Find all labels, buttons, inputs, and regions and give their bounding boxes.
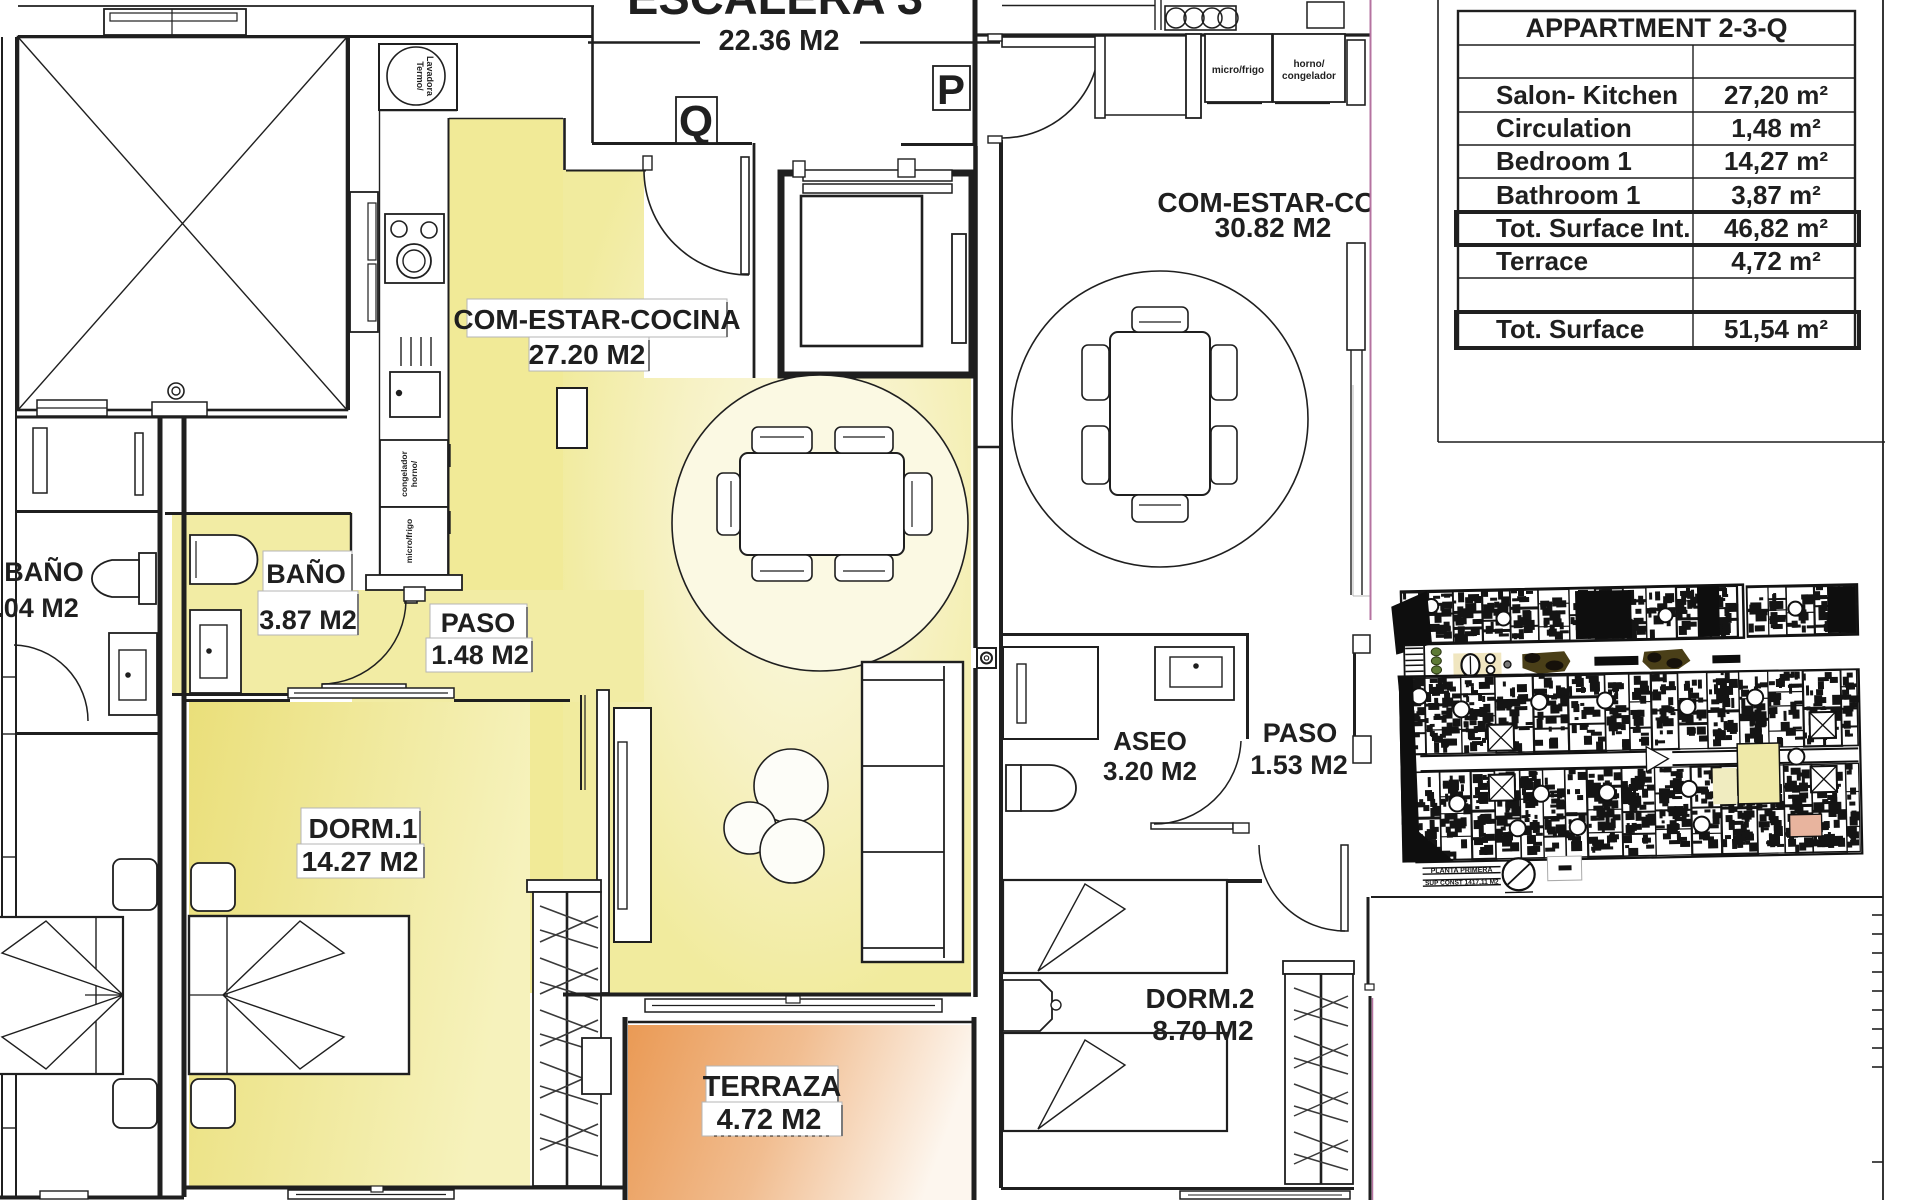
svg-text:DORM.1: DORM.1 bbox=[309, 813, 418, 844]
svg-text:PASO: PASO bbox=[1263, 718, 1338, 748]
svg-text:1,48 m²: 1,48 m² bbox=[1731, 113, 1821, 143]
svg-text:Q: Q bbox=[679, 97, 713, 146]
svg-text:Bedroom 1: Bedroom 1 bbox=[1496, 146, 1632, 176]
svg-text:TERRAZA: TERRAZA bbox=[703, 1071, 842, 1103]
svg-text:congelador: congelador bbox=[1282, 71, 1336, 82]
svg-text:14,27 m²: 14,27 m² bbox=[1724, 146, 1828, 176]
svg-text:ASEO: ASEO bbox=[1113, 726, 1187, 756]
svg-text:horno/: horno/ bbox=[409, 460, 419, 487]
svg-text:congelador: congelador bbox=[399, 450, 409, 497]
svg-text:Termo/: Termo/ bbox=[415, 61, 425, 91]
svg-text:Bathroom 1: Bathroom 1 bbox=[1496, 180, 1640, 210]
svg-text:micro/frigo: micro/frigo bbox=[404, 519, 414, 563]
svg-text:Tot. Surface Int.: Tot. Surface Int. bbox=[1496, 213, 1691, 243]
svg-text:DORM.2: DORM.2 bbox=[1146, 983, 1255, 1014]
svg-text:Tot. Surface: Tot. Surface bbox=[1496, 314, 1644, 344]
svg-text:27.20 M2: 27.20 M2 bbox=[529, 339, 646, 370]
svg-text:4.04 M2: 4.04 M2 bbox=[0, 593, 79, 623]
svg-text:SUP CONST 1417,11 M2: SUP CONST 1417,11 M2 bbox=[1425, 879, 1499, 887]
svg-text:1.53 M2: 1.53 M2 bbox=[1250, 750, 1348, 780]
svg-text:30.82 M2: 30.82 M2 bbox=[1215, 212, 1332, 243]
svg-text:Salon- Kitchen: Salon- Kitchen bbox=[1496, 80, 1678, 110]
svg-text:3,87 m²: 3,87 m² bbox=[1731, 180, 1821, 210]
svg-text:P: P bbox=[937, 66, 965, 113]
svg-text:4.72 M2: 4.72 M2 bbox=[717, 1104, 822, 1136]
svg-text:Terrace: Terrace bbox=[1496, 246, 1588, 276]
svg-text:46,82 m²: 46,82 m² bbox=[1724, 213, 1828, 243]
svg-text:3.20 M2: 3.20 M2 bbox=[1103, 756, 1197, 786]
svg-text:horno/: horno/ bbox=[1293, 59, 1324, 70]
svg-text:COM-ESTAR-COCINA: COM-ESTAR-COCINA bbox=[453, 304, 740, 335]
svg-text:8.70 M2: 8.70 M2 bbox=[1152, 1015, 1253, 1046]
svg-text:APPARTMENT 2-3-Q: APPARTMENT 2-3-Q bbox=[1525, 13, 1787, 43]
svg-text:ESCALERA 3: ESCALERA 3 bbox=[627, 0, 923, 24]
svg-text:PASO: PASO bbox=[441, 608, 516, 638]
svg-text:micro/frigo: micro/frigo bbox=[1212, 65, 1264, 76]
svg-text:4,72 m²: 4,72 m² bbox=[1731, 246, 1821, 276]
svg-text:Lavadora: Lavadora bbox=[425, 56, 435, 97]
svg-text:Circulation: Circulation bbox=[1496, 113, 1632, 143]
svg-text:3.87 M2: 3.87 M2 bbox=[259, 605, 357, 635]
svg-text:22.36 M2: 22.36 M2 bbox=[719, 25, 840, 57]
svg-text:14.27 M2: 14.27 M2 bbox=[302, 846, 419, 877]
svg-text:BAÑO: BAÑO bbox=[4, 556, 84, 587]
svg-text:27,20 m²: 27,20 m² bbox=[1724, 80, 1828, 110]
svg-text:51,54 m²: 51,54 m² bbox=[1724, 314, 1828, 344]
svg-text:PLANTA PRIMERA: PLANTA PRIMERA bbox=[1431, 867, 1493, 875]
svg-text:BAÑO: BAÑO bbox=[266, 558, 346, 589]
svg-text:1.48 M2: 1.48 M2 bbox=[431, 640, 529, 670]
